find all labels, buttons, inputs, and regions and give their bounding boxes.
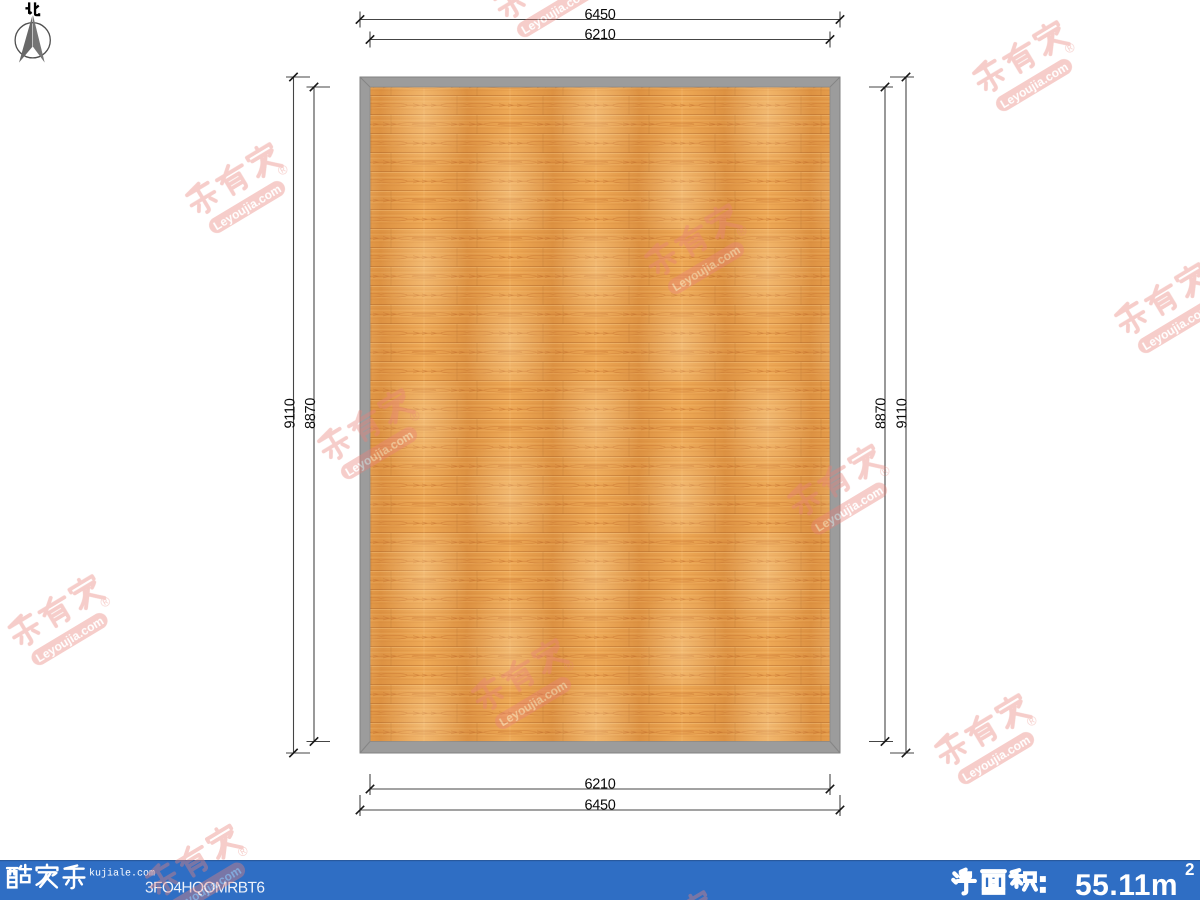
svg-text:9110: 9110 [895, 398, 911, 428]
svg-text:8870: 8870 [874, 398, 890, 429]
svg-text:9110: 9110 [283, 398, 299, 428]
svg-text:6210: 6210 [584, 777, 615, 793]
svg-text:55.11m: 55.11m [1075, 869, 1178, 900]
svg-text:6210: 6210 [584, 27, 615, 43]
svg-text:6450: 6450 [584, 797, 615, 813]
svg-text:kujiale.com: kujiale.com [89, 868, 155, 880]
svg-text:6450: 6450 [584, 7, 615, 23]
svg-text:2: 2 [1185, 860, 1194, 879]
svg-text:8870: 8870 [303, 398, 319, 429]
